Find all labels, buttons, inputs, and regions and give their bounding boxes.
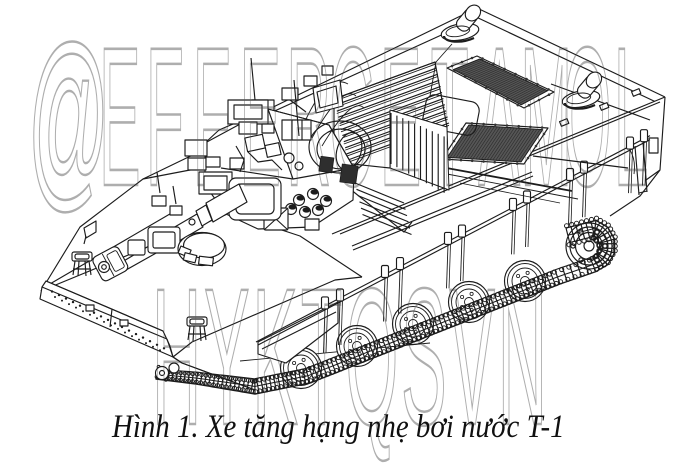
svg-text:E: E xyxy=(99,7,141,228)
svg-text:A: A xyxy=(478,7,520,228)
svg-text:L: L xyxy=(614,7,649,228)
svg-text:F: F xyxy=(146,7,184,228)
svg-text:E: E xyxy=(380,7,422,228)
svg-text:E: E xyxy=(239,7,281,228)
svg-text:O: O xyxy=(563,7,612,228)
svg-text:F: F xyxy=(193,7,231,228)
svg-text:T: T xyxy=(431,7,469,228)
svg-text:C: C xyxy=(329,7,374,228)
svg-text:HYKTQSVN: HYKTQSVN xyxy=(152,248,550,466)
svg-text:R: R xyxy=(286,7,331,228)
svg-text:@: @ xyxy=(27,7,109,228)
